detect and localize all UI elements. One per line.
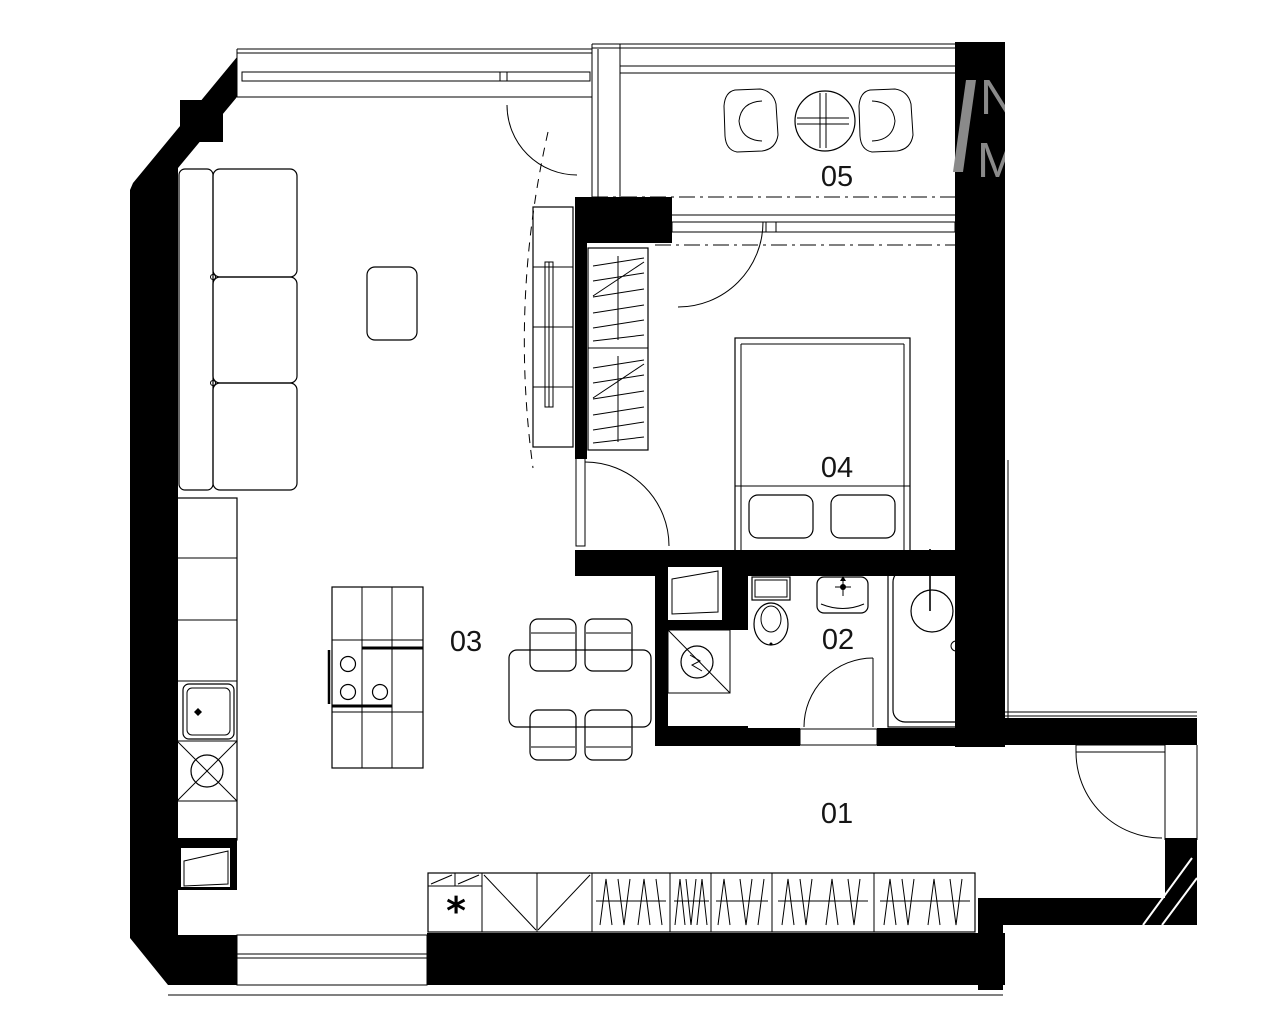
counter-outline bbox=[177, 498, 237, 840]
dining-chair bbox=[585, 710, 632, 760]
burner bbox=[341, 685, 356, 700]
entrance-door-arc bbox=[1076, 752, 1162, 838]
balcony-table bbox=[795, 91, 855, 151]
tv-unit bbox=[533, 207, 573, 447]
toilet-bowl bbox=[754, 603, 788, 645]
toilet-bowl-inner bbox=[761, 606, 781, 632]
shaft-right bbox=[722, 550, 748, 630]
shaft-bottom bbox=[655, 726, 748, 746]
cooktop-island bbox=[329, 587, 423, 768]
door-diagonal bbox=[484, 875, 536, 930]
balcony-chair bbox=[724, 89, 778, 152]
sofa-seat bbox=[213, 383, 297, 490]
shaft-left bbox=[655, 550, 668, 746]
hallway-bottom-wall bbox=[1003, 898, 1197, 925]
window-frame bbox=[242, 72, 590, 81]
pillow bbox=[749, 495, 813, 538]
coffee-table bbox=[367, 267, 417, 340]
shelf-diagonal bbox=[431, 875, 452, 884]
right-wall-below-door bbox=[1165, 838, 1197, 900]
sink-drain-icon bbox=[194, 708, 202, 716]
hanger-hatch bbox=[600, 879, 662, 925]
living-balcony-door-arc bbox=[507, 105, 577, 175]
kitchen-sink bbox=[183, 684, 234, 739]
room-label-01: 01 bbox=[821, 798, 853, 830]
bedroom-furniture bbox=[588, 248, 910, 552]
pillar bbox=[180, 100, 223, 142]
bathroom-bottom-wall-right bbox=[877, 728, 1005, 746]
kitchen-counter bbox=[177, 498, 237, 840]
south-window bbox=[237, 935, 427, 985]
window-mullion bbox=[500, 72, 507, 81]
hanger-hatch bbox=[718, 879, 764, 925]
hallway-wardrobe: * bbox=[428, 873, 975, 933]
shaft-divider bbox=[655, 620, 748, 630]
bathroom-bottom-wall-left bbox=[748, 728, 800, 746]
hanger-hatch bbox=[675, 879, 707, 925]
niche-inset bbox=[181, 848, 230, 887]
door-diagonal bbox=[538, 875, 590, 930]
hanger-hatch bbox=[884, 879, 962, 925]
room-label-02: 02 bbox=[822, 624, 854, 656]
toilet-tank-inner bbox=[755, 580, 787, 597]
balcony-chair-seat bbox=[739, 101, 762, 141]
bedroom-left-wall bbox=[575, 243, 587, 459]
balcony-chair-seat bbox=[872, 101, 895, 141]
sofa-seat bbox=[213, 169, 297, 277]
windows bbox=[168, 44, 1197, 995]
watermark-letter-n: N bbox=[980, 71, 1015, 125]
bottom-wall bbox=[427, 933, 1005, 985]
faucet-icon bbox=[840, 584, 846, 590]
balcony-furniture bbox=[724, 89, 913, 152]
bathtub-drain-circle bbox=[911, 590, 953, 632]
balcony-chair bbox=[859, 89, 913, 152]
island-outline bbox=[332, 587, 423, 768]
bedroom-wall-stub bbox=[575, 197, 672, 243]
bedroom-door-arc bbox=[585, 462, 669, 546]
bathroom-top-wall bbox=[575, 550, 1005, 576]
bathroom-door-arc bbox=[804, 658, 873, 727]
burner bbox=[341, 657, 356, 672]
washbasin-inner-line bbox=[821, 604, 864, 609]
dining-chair bbox=[585, 619, 632, 671]
burner bbox=[373, 685, 388, 700]
dining-chair bbox=[530, 619, 576, 671]
bedroom-balcony-door-arc bbox=[678, 222, 763, 307]
sofa-seat bbox=[213, 277, 297, 383]
floor-plan: * 05 04 02 03 01 N M bbox=[0, 0, 1280, 1024]
bedroom-door-leaf bbox=[576, 458, 585, 546]
room-label-03: 03 bbox=[450, 626, 482, 658]
bedroom-window-frame bbox=[672, 222, 955, 232]
toilet-drain bbox=[770, 643, 773, 646]
shelf-diagonal bbox=[458, 875, 479, 884]
kitchen-sink-inner bbox=[187, 688, 230, 735]
pillow bbox=[831, 495, 895, 538]
dining-chair bbox=[530, 710, 576, 760]
dining-set bbox=[509, 619, 651, 760]
room-label-04: 04 bbox=[821, 452, 853, 484]
hanger-hatch bbox=[782, 879, 860, 925]
entrance-door-leaf bbox=[1076, 745, 1165, 752]
door-swing-dashed bbox=[524, 132, 548, 468]
bathroom-threshold bbox=[800, 728, 877, 746]
sofa bbox=[179, 169, 297, 490]
watermark-letter-m: M bbox=[977, 134, 1018, 188]
sofa-backrest bbox=[179, 169, 213, 490]
hallway-top-wall bbox=[1005, 718, 1197, 745]
bed-outline bbox=[735, 338, 910, 552]
bedroom-window-mullion bbox=[766, 222, 776, 232]
wall-niche bbox=[181, 848, 230, 887]
room-label-05: 05 bbox=[821, 161, 853, 193]
closet-asterisk-icon: * bbox=[446, 889, 466, 933]
shaft-lower-area bbox=[668, 630, 748, 726]
